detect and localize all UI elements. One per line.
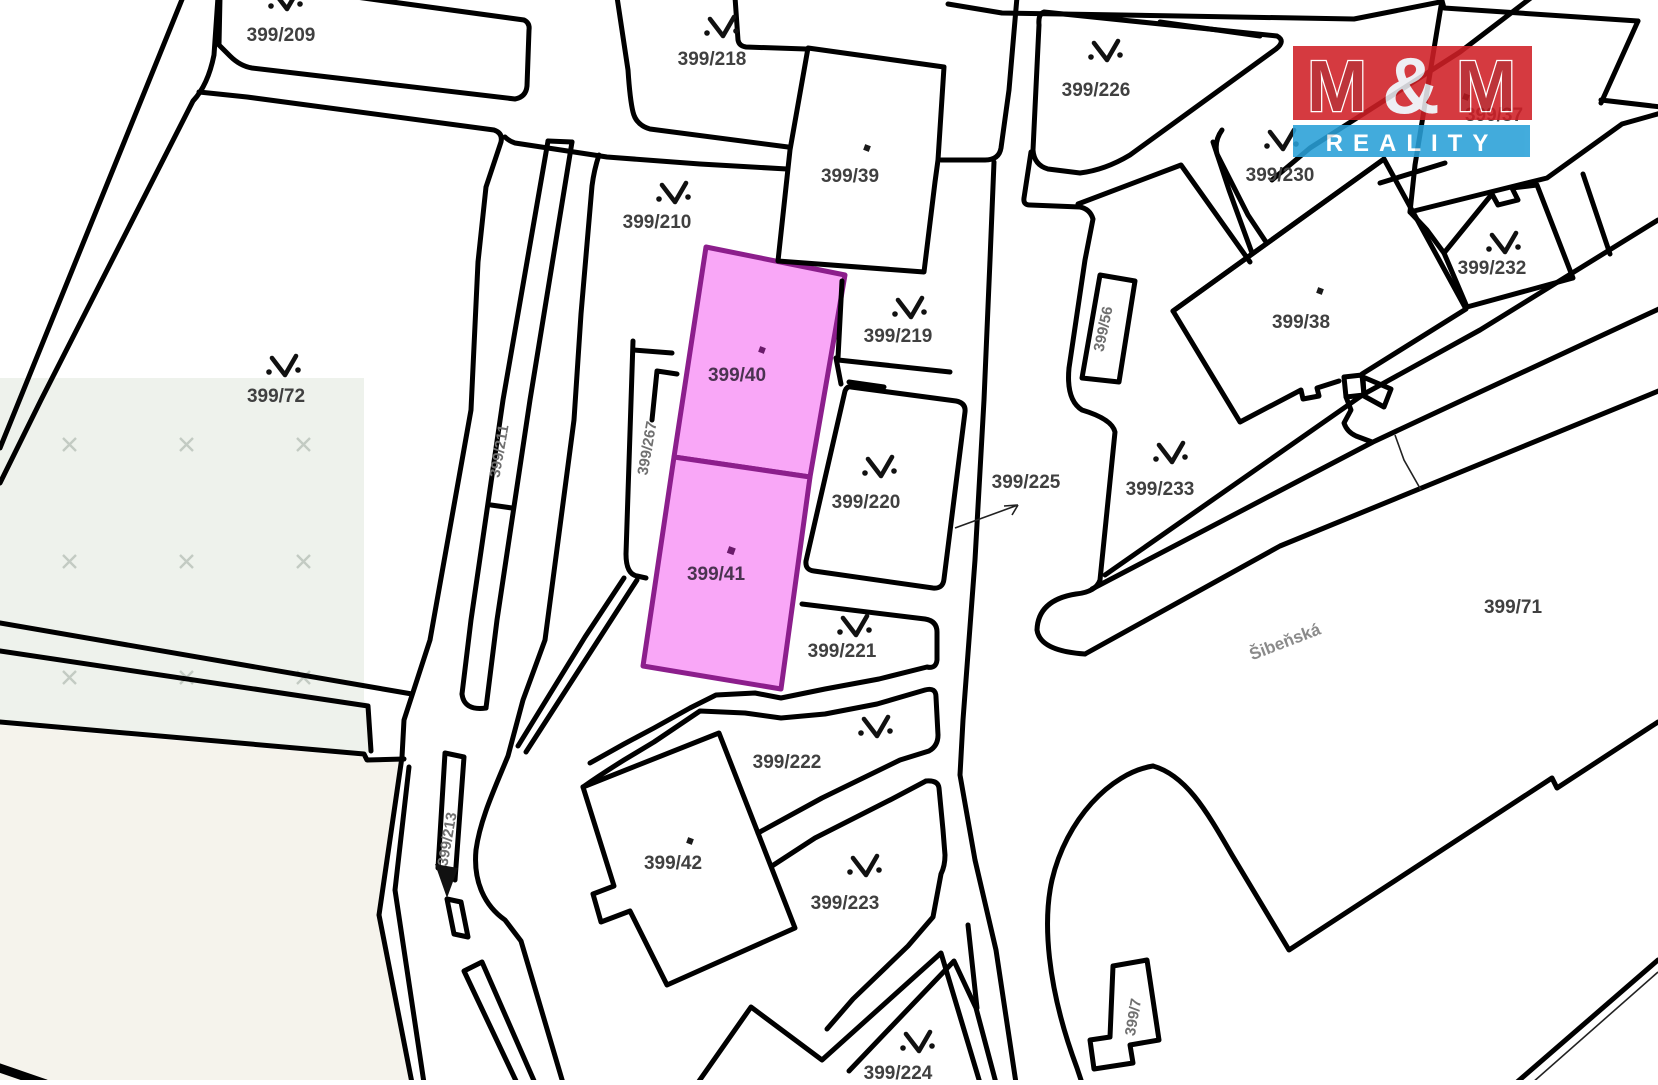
svg-text:399/220: 399/220 [832, 492, 901, 513]
svg-text:399/40: 399/40 [708, 365, 766, 386]
svg-text:399/219: 399/219 [864, 326, 933, 347]
svg-text:399/222: 399/222 [753, 752, 822, 773]
svg-text:REALITY: REALITY [1326, 130, 1499, 157]
svg-text:399/71: 399/71 [1484, 597, 1543, 618]
svg-text:399/224: 399/224 [864, 1063, 933, 1080]
svg-text:399/218: 399/218 [678, 49, 747, 70]
svg-text:399/226: 399/226 [1062, 80, 1131, 101]
svg-text:399/41: 399/41 [687, 564, 746, 585]
svg-text:399/221: 399/221 [808, 641, 877, 662]
svg-text:399/232: 399/232 [1458, 258, 1527, 279]
svg-text:399/210: 399/210 [623, 212, 692, 233]
svg-text:399/39: 399/39 [821, 166, 879, 187]
svg-text:399/230: 399/230 [1246, 165, 1315, 186]
svg-text:M: M [1456, 47, 1516, 127]
svg-text:399/38: 399/38 [1272, 312, 1330, 333]
svg-text:399/209: 399/209 [247, 25, 316, 46]
svg-text:M: M [1307, 47, 1367, 127]
svg-text:399/72: 399/72 [247, 386, 305, 407]
svg-text:399/223: 399/223 [811, 893, 880, 914]
svg-text:399/225: 399/225 [992, 472, 1061, 493]
svg-text:399/42: 399/42 [644, 853, 702, 874]
svg-text:&: & [1382, 41, 1440, 130]
svg-text:399/233: 399/233 [1126, 479, 1195, 500]
